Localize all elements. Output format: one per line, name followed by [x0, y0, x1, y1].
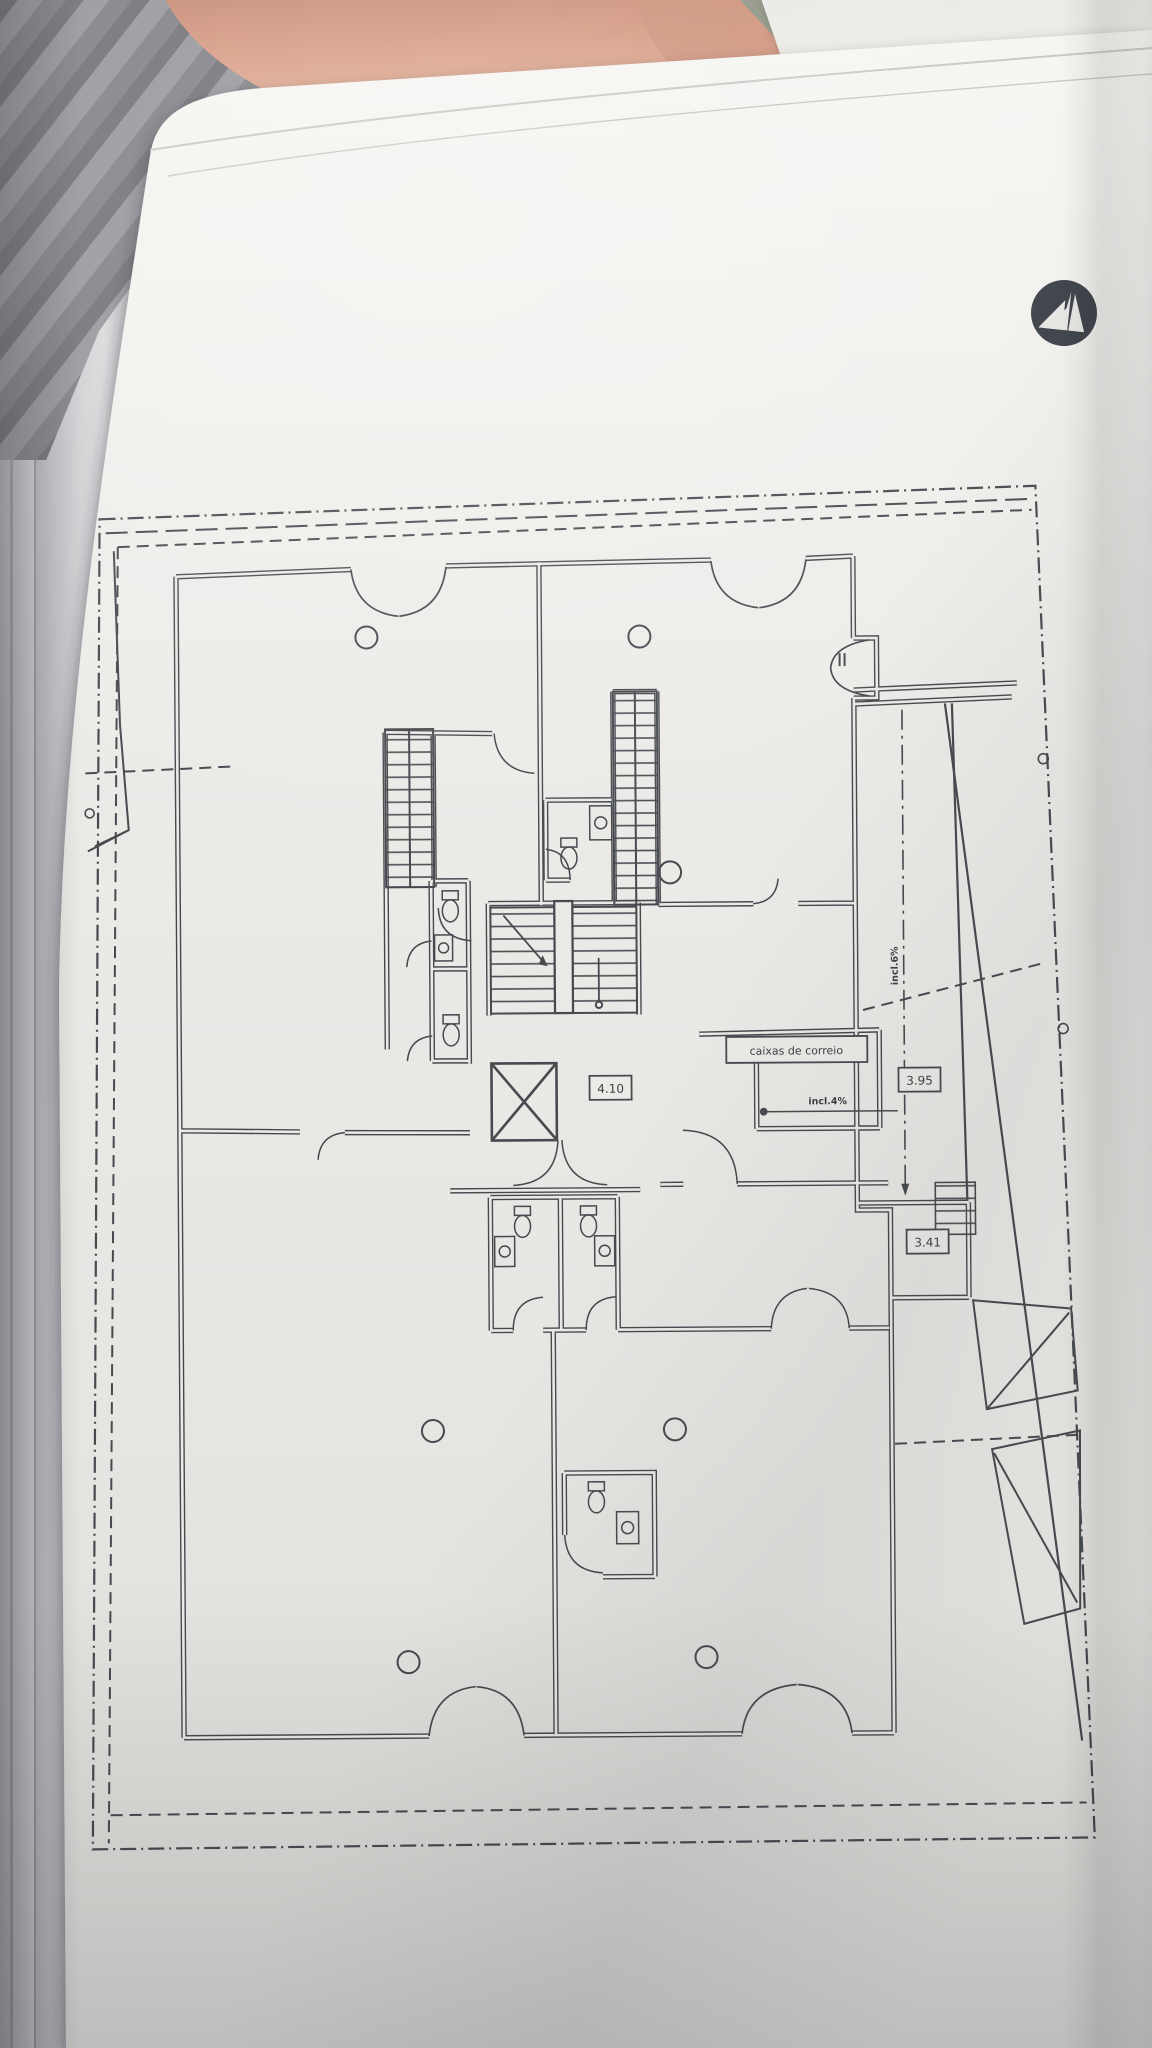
- plan-sheet-svg: caixas de correio 4.10 3.95 3.41 incl.4%…: [0, 0, 1152, 2048]
- photo-of-floor-plan-sheet: 25: [0, 0, 1152, 2048]
- stair-ramp-steps: [935, 1182, 975, 1234]
- plan-sheet: [59, 30, 1152, 2048]
- stair-left: [385, 729, 434, 887]
- dim-lower-label: 3.41: [914, 1235, 941, 1249]
- dim-core-label: 4.10: [597, 1082, 624, 1096]
- slope-ramp-label: incl.6%: [890, 946, 901, 985]
- dim-ramp-label: 3.95: [906, 1074, 933, 1088]
- slope-entry-label: incl.4%: [808, 1096, 847, 1107]
- mailboxes-label: caixas de correio: [750, 1044, 844, 1058]
- stair-right: [613, 691, 658, 904]
- stair-main: [490, 901, 637, 1014]
